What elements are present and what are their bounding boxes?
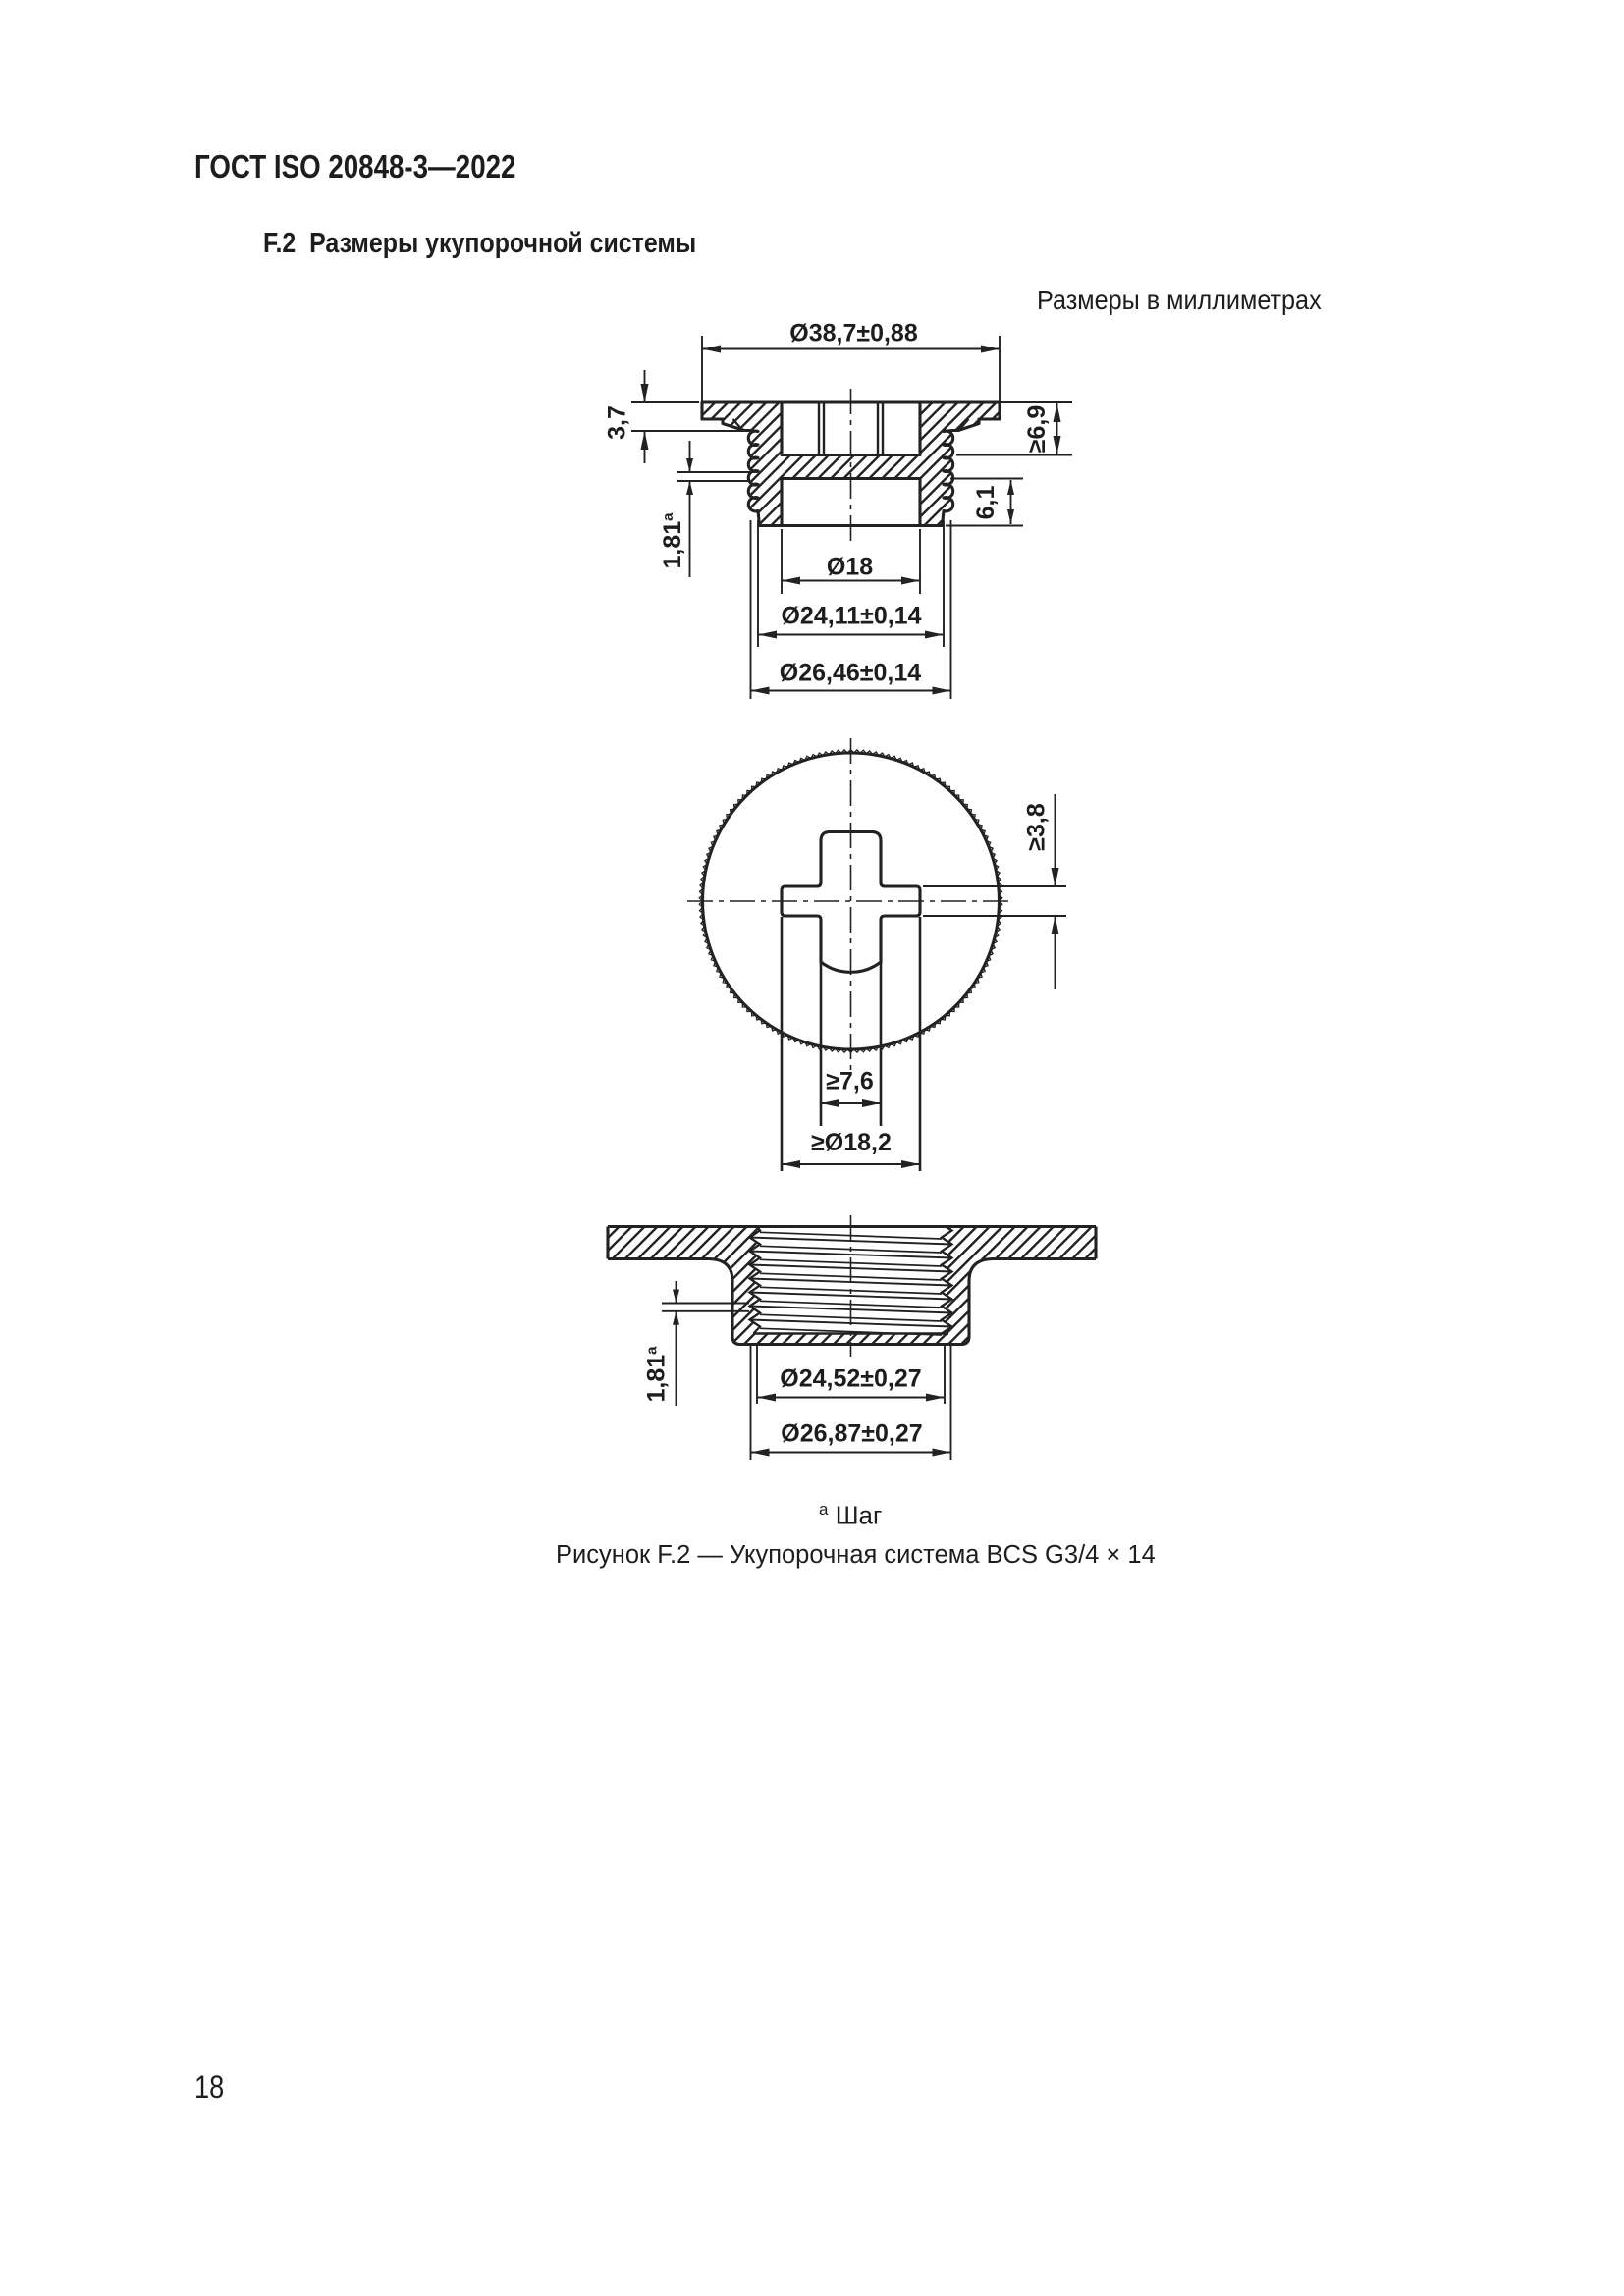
svg-text:6,1: 6,1 — [972, 486, 1000, 520]
svg-text:1,81а: 1,81а — [659, 512, 686, 569]
svg-text:Ø26,46±0,14: Ø26,46±0,14 — [780, 660, 921, 687]
svg-text:≥7,6: ≥7,6 — [826, 1068, 873, 1095]
svg-text:Ø18: Ø18 — [827, 554, 873, 581]
svg-text:Ø24,52±0,27: Ø24,52±0,27 — [780, 1365, 921, 1393]
svg-text:3,7: 3,7 — [604, 405, 631, 440]
svg-text:Ø26,87±0,27: Ø26,87±0,27 — [781, 1420, 922, 1448]
svg-text:≥Ø18,2: ≥Ø18,2 — [811, 1129, 892, 1156]
svg-text:Ø24,11±0,14: Ø24,11±0,14 — [781, 603, 921, 630]
svg-text:1,81а: 1,81а — [643, 1346, 671, 1403]
svg-text:≥6,9: ≥6,9 — [1023, 405, 1051, 453]
svg-text:Ø38,7±0,88: Ø38,7±0,88 — [789, 320, 918, 347]
svg-text:≥3,8: ≥3,8 — [1023, 803, 1051, 851]
